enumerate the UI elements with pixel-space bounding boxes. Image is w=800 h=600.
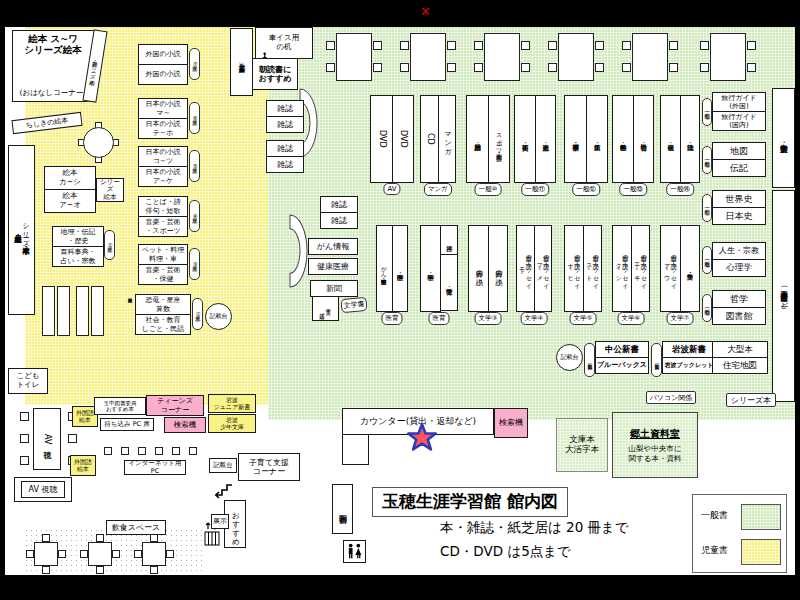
iwanami-booklet-shelf: 岩波ブックレット bbox=[662, 357, 716, 374]
shelf-group-foreign-novels: 外国の小説 外国の小説 文学③ bbox=[468, 225, 508, 312]
biography-shelf: 伝記 bbox=[712, 159, 766, 177]
shelf-column: DVD bbox=[392, 95, 415, 183]
av-viewing-booth-label: AV 視聴 bbox=[21, 481, 65, 498]
reading-table-group bbox=[326, 33, 382, 81]
chair bbox=[447, 41, 456, 50]
reading-table-group bbox=[400, 33, 456, 81]
left-letterbox-bar bbox=[0, 0, 5, 600]
chair bbox=[474, 63, 483, 72]
right-letterbox-bar bbox=[795, 0, 800, 600]
magazine-shelf: 雑誌 bbox=[320, 212, 358, 229]
chair bbox=[326, 41, 335, 50]
loan-limit-note: 本・雑誌・紙芝居は 20 冊まで bbox=[440, 519, 670, 537]
shelf-column: CD bbox=[420, 95, 439, 183]
shelf-column: 医学・医学 bbox=[420, 225, 441, 312]
shelf-group-av: DVD DVD AV bbox=[370, 95, 414, 183]
chair bbox=[548, 63, 557, 72]
picture-book-shelf-ka-shi: 絵本 カ~シ bbox=[44, 166, 96, 190]
shelf-group-jp-novels-ku: 日本の小説・エッセイ ク~シ 日本の小説・エッセイ エ~キ 文学⑥ bbox=[612, 225, 650, 312]
stairs-arrow-icon bbox=[212, 483, 234, 499]
reading-table-group bbox=[622, 33, 678, 81]
shelf-tag: 医育 bbox=[382, 312, 403, 325]
chair bbox=[20, 456, 29, 465]
iwanami-junior-shinsho-shelf: 岩波 ジュニア新書 bbox=[208, 394, 256, 413]
chair bbox=[42, 566, 50, 574]
chair bbox=[400, 41, 409, 50]
chair bbox=[669, 41, 678, 50]
chair bbox=[20, 434, 29, 443]
kids-toilet: こども トイレ bbox=[8, 368, 48, 394]
restroom-icon bbox=[343, 540, 366, 563]
children-1-tag: 児童① bbox=[104, 230, 115, 260]
close-mark-icon: ✕ bbox=[420, 4, 431, 19]
chair bbox=[150, 566, 158, 574]
writing-stand: 記載台 bbox=[205, 303, 232, 330]
shelf-group-medical-2: 医学・医学 洋書 育児・医学 医育 bbox=[420, 225, 458, 312]
shelf-tag: 文学③ bbox=[475, 312, 502, 325]
literature-books-tag: 文学書 bbox=[340, 297, 367, 314]
map-shelf: 地図 bbox=[712, 142, 766, 160]
morning-reading-shelf: 朝読書に おすすめ bbox=[252, 58, 298, 90]
chair bbox=[669, 63, 678, 72]
display-tag: 展示 bbox=[211, 514, 229, 529]
shelf-slat bbox=[42, 286, 55, 336]
chair bbox=[138, 447, 146, 455]
av-limit-note: CD・DVD は5点まで bbox=[440, 543, 670, 561]
shelf-group-crafts: 手芸・料理・家事 技術・工業 一般⑫ bbox=[564, 95, 608, 183]
series-picture-book-tag: シリーズ 絵本 bbox=[96, 178, 124, 202]
kids-society-shelf: 社会・教育 しごと・民話 bbox=[135, 314, 191, 335]
kids-shinsho-shelf: 児童新書 青い鳥文庫・他 bbox=[230, 28, 253, 96]
chair bbox=[700, 41, 709, 50]
psychology-shelf: 心理学 bbox=[712, 259, 766, 277]
kids-japanese-novel-shelf: 日本の小説 マ~ bbox=[138, 98, 188, 119]
cafe-table bbox=[88, 542, 112, 566]
story-room-sublabel: (おはなしコーナー) bbox=[20, 89, 87, 98]
wheelchair-desk-label: 車イス用 の机 bbox=[269, 34, 299, 51]
kids-science-shelf: 恐竜・星座 算数 bbox=[135, 294, 191, 315]
chair bbox=[622, 63, 631, 72]
wheelchair-desk: 車イス用 の机 bbox=[255, 27, 313, 59]
shelf-column: 育児・医学 bbox=[440, 254, 459, 311]
general-shinsho-tag: 一般新書 bbox=[651, 343, 662, 377]
chair bbox=[96, 534, 104, 542]
general-18-tag: 一般⑱ bbox=[702, 246, 712, 274]
shelf-slat bbox=[91, 286, 104, 336]
internet-pc-desk: インターネット用 PC bbox=[124, 460, 186, 475]
shelf-tag: 文学⑥ bbox=[618, 312, 645, 325]
chair bbox=[595, 63, 604, 72]
children-2-tag: 児童② bbox=[192, 298, 203, 330]
shelf-tag: AV bbox=[383, 183, 400, 195]
cafe-table bbox=[142, 542, 166, 566]
magazine-shelf: 雑誌 bbox=[266, 140, 304, 157]
local-history-room-title: 郷土資料室 bbox=[630, 427, 680, 441]
shelf-column: 日本の小説・エッセイ エ~キ bbox=[631, 225, 651, 312]
shelf-tag: 文学④ bbox=[521, 312, 548, 325]
health-care-shelf: 健康医療 bbox=[308, 258, 358, 275]
bluebacks-shelf: ブルーバックス bbox=[595, 357, 649, 374]
counter-leg bbox=[342, 434, 369, 465]
general-shinsho-tag: 一般新書 bbox=[584, 343, 595, 377]
reading-table-group bbox=[700, 33, 756, 81]
shelf-column: 税金・福祉 bbox=[660, 95, 681, 183]
search-terminal: 検索機 bbox=[494, 408, 528, 438]
chuko-shinsho-shelf: 中公新書 bbox=[595, 341, 649, 358]
general-16-tag: 一般⑯ bbox=[702, 146, 712, 174]
legend-children-swatch bbox=[741, 539, 781, 565]
chair bbox=[521, 41, 530, 50]
iwanami-shinsho-shelf: 岩波新書 bbox=[662, 341, 716, 358]
shelf-column: DVD bbox=[370, 95, 393, 183]
shelf-column: マンガ bbox=[438, 95, 457, 183]
children-6-tag: 児童⑥ bbox=[189, 102, 200, 134]
legend-children-label: 児童書 bbox=[701, 544, 728, 557]
shelf-column: 観光・産業 bbox=[535, 95, 557, 183]
round-table-group bbox=[78, 122, 120, 164]
search-terminal: 検索機 bbox=[164, 417, 206, 433]
children-5-tag: 児童⑤ bbox=[189, 150, 200, 182]
chair bbox=[96, 566, 104, 574]
japanese-history-shelf: 日本史 bbox=[712, 207, 766, 225]
encyclopedia-shelf: 百科事典・ 占い・宗教 bbox=[52, 246, 104, 267]
bottom-letterbox-bar bbox=[0, 575, 800, 600]
kids-foreign-novel-shelf: 外国の小説 bbox=[138, 64, 188, 85]
shelf-column: 数学・自然科学 bbox=[612, 95, 634, 183]
legend: 一般書 児童書 bbox=[692, 494, 787, 573]
writing-stand: 記載台 bbox=[209, 458, 237, 473]
shelf-column: がん情報・医療・医学 bbox=[376, 225, 393, 312]
picture-book-shelf-a-o: 絵本 ア~オ bbox=[44, 189, 96, 213]
cancer-info-shelf: がん情報 bbox=[308, 238, 358, 255]
shelf-column: 外国の小説 bbox=[488, 225, 509, 312]
shelf-group-language: 日本語・外国語 スポーツ・音楽・演劇 一般⑩ bbox=[466, 95, 510, 183]
chair bbox=[68, 434, 77, 443]
philosophy-shelf: 哲学 bbox=[712, 290, 766, 308]
reading-table bbox=[484, 33, 520, 81]
parenting-support-shelf: 子育て 応援 bbox=[312, 296, 339, 321]
kamishibai-shelf: シリーズ本・点字絵本・布絵本・ 紙芝居・大型紙芝居・大型絵本 bbox=[8, 145, 35, 315]
chair bbox=[622, 41, 631, 50]
shelf-column: 芸術・美術 bbox=[514, 95, 536, 183]
reading-table bbox=[336, 33, 372, 81]
kids-shinsho-sublabel: 青い鳥文庫・他 bbox=[239, 59, 244, 64]
shelf-column: 技術・工業 bbox=[586, 95, 609, 183]
map-title: 玉穂生涯学習館 館内図 bbox=[372, 487, 568, 517]
housing-map-shelf: 住宅地図 bbox=[712, 357, 768, 374]
chair bbox=[548, 41, 557, 50]
shelf-tag: 文学⑦ bbox=[667, 312, 694, 325]
shelf-group-art: 芸術・美術 観光・産業 一般⑪ bbox=[514, 95, 556, 183]
shelf-column: スポーツ・音楽・演劇 bbox=[488, 95, 511, 183]
local-history-room: 郷土資料室 山梨や中央市に 関する本・資料 bbox=[612, 412, 698, 478]
reading-table-group bbox=[474, 33, 530, 81]
life-religion-shelf: 人生・宗教 bbox=[712, 242, 766, 260]
kids-japanese-novel-shelf: 日本の小説 テ~ホ bbox=[138, 118, 188, 139]
newspaper-rack: 新聞 bbox=[310, 280, 358, 297]
shelf-group-manga: CD マンガ マンガ bbox=[420, 95, 456, 183]
reading-table bbox=[410, 33, 446, 81]
magazine-shelf: 雑誌 bbox=[266, 156, 304, 173]
shelf-column: 文学・俳句・詩 bbox=[680, 225, 701, 312]
magazine-shelf: 雑誌 bbox=[266, 116, 304, 133]
shelf-tag: 一般⑩ bbox=[475, 183, 502, 196]
shelf-slat bbox=[76, 286, 89, 336]
shelf-column: 洋書 bbox=[440, 225, 459, 255]
chair bbox=[104, 447, 112, 455]
world-history-shelf: 世界史 bbox=[712, 190, 766, 208]
chair bbox=[166, 550, 174, 558]
shelf-tag: 医育 bbox=[429, 312, 450, 325]
shelf-column: 日本の小説・エッセイ ス~ト bbox=[583, 225, 603, 312]
general-15-tag: 一般⑮ bbox=[702, 98, 712, 126]
writing-stand: 記載台 bbox=[556, 344, 583, 371]
chair bbox=[700, 63, 709, 72]
av-viewing-table: AV視聴 bbox=[33, 408, 61, 470]
shelf-column: 日本の小説・エッセイ モ~ bbox=[516, 225, 535, 312]
story-corner-room: 絵本 ス~ワ シリーズ絵本 (おはなしコーナー) bbox=[12, 30, 94, 102]
shelf-column: 日本の小説・エッセイ ア~ウ bbox=[660, 225, 681, 312]
round-table bbox=[83, 127, 114, 158]
series-books-tag: シリーズ本 bbox=[726, 393, 776, 407]
chair bbox=[595, 41, 604, 50]
kids-large-book-label: 児童大型本 bbox=[125, 294, 135, 338]
chair bbox=[747, 63, 756, 72]
children-4-tag: 児童④ bbox=[189, 200, 200, 232]
byod-pc-seat: 持ち込み PC 席 bbox=[100, 418, 154, 431]
shelf-column: 日本の小説・エッセイ ク~シ bbox=[612, 225, 632, 312]
you-are-here-star-icon bbox=[406, 423, 438, 451]
chair bbox=[521, 63, 530, 72]
reference-books-strip: 参考図書(図鑑・辞書など) bbox=[772, 190, 795, 402]
shelf-tag: 一般⑪ bbox=[521, 183, 549, 196]
magazine-shelf: 雑誌 bbox=[320, 196, 358, 213]
shelf-tag: 一般⑫ bbox=[572, 183, 600, 196]
story-room-label: シリーズ絵本 bbox=[24, 45, 82, 56]
travel-guide-domestic-shelf: 旅行ガイド (国内) bbox=[712, 111, 766, 131]
shelf-column: 医療・医学 bbox=[392, 225, 409, 312]
kids-music-sports-shelf: 音楽・芸術 ・スポーツ bbox=[138, 216, 188, 237]
shelf-column: 日本の小説・エッセイ ナ~ヒ bbox=[564, 225, 584, 312]
shelf-column: 政治・法律 bbox=[680, 95, 701, 183]
shelf-group-medical-1: がん情報・医療・医学 医療・医学 医育 bbox=[376, 225, 408, 312]
chair bbox=[474, 41, 483, 50]
geography-shelf: 地理・伝記 ・歴史 bbox=[52, 226, 104, 247]
reading-table bbox=[710, 33, 746, 81]
shelf-group-jp-novels-na: 日本の小説・エッセイ ナ~ヒ 日本の小説・エッセイ ス~ト 文学⑤ bbox=[564, 225, 602, 312]
general-17-tag: 一般⑰ bbox=[702, 194, 712, 222]
shelf-column: 日本語・外国語 bbox=[466, 95, 489, 183]
chair bbox=[112, 550, 120, 558]
shelf-slat bbox=[57, 286, 70, 336]
teens-corner: ティーンズ コーナー bbox=[146, 395, 204, 416]
large-books-shelf: 大型本 bbox=[712, 341, 768, 358]
chair bbox=[150, 534, 158, 542]
shelf-column: 外国の小説 bbox=[468, 225, 489, 312]
local-history-room-subtitle: 山梨や中央市に 関する本・資料 bbox=[629, 444, 682, 464]
chair bbox=[326, 63, 335, 72]
pc-related-tag: パソコン関係 bbox=[646, 391, 696, 404]
cafe-table bbox=[34, 542, 58, 566]
chair bbox=[42, 534, 50, 542]
iwanami-shonen-bunko-shelf: 岩波 少年文庫 bbox=[208, 414, 256, 433]
shelf-column-stack: 洋書 育児・医学 bbox=[440, 225, 459, 312]
chair bbox=[373, 63, 382, 72]
shelf-tag: 一般⑭ bbox=[666, 183, 694, 196]
chair bbox=[80, 550, 88, 558]
kids-music-health-shelf: 音楽・芸術 ・保健 bbox=[138, 264, 188, 285]
chair bbox=[189, 447, 197, 455]
chair bbox=[172, 447, 180, 455]
chair bbox=[134, 550, 142, 558]
literature-collection-strip: 文学全集・叢書 bbox=[772, 88, 795, 188]
reading-table-group bbox=[548, 33, 604, 81]
paperback-large-print-area: 文庫本 大活字本 bbox=[556, 418, 608, 472]
school-committee-picks-shelf: 玉中図書委員 おすすめ本 bbox=[94, 397, 146, 415]
shelf-group-jp-novels-a: 日本の小説・エッセイ ア~ウ 文学・俳句・詩 文学⑦ bbox=[660, 225, 700, 312]
children-3-tag: 児童③ bbox=[189, 248, 200, 280]
chair bbox=[447, 63, 456, 72]
parenting-support-corner: 子育て支援 コーナー bbox=[238, 453, 300, 481]
chair bbox=[400, 63, 409, 72]
shelf-tag: 文学⑤ bbox=[570, 312, 597, 325]
reading-table bbox=[632, 33, 668, 81]
kids-poetry-shelf: ことば・詩 俳句・短歌 bbox=[138, 196, 188, 217]
shelf-column: 民俗・教育 bbox=[633, 95, 655, 183]
kids-foreign-novel-shelf: 外国の小説 bbox=[138, 44, 188, 65]
new-arrivals-shelf: 新刊図書 bbox=[332, 484, 353, 534]
chair bbox=[20, 412, 29, 421]
library-science-shelf: 図書館 bbox=[712, 307, 766, 325]
shelf-tag: 一般⑬ bbox=[619, 183, 647, 196]
chair bbox=[121, 447, 129, 455]
chair bbox=[26, 550, 34, 558]
shelf-tag: マンガ bbox=[424, 183, 452, 196]
travel-guide-foreign-shelf: 旅行ガイド (外国) bbox=[712, 92, 766, 112]
legend-general-label: 一般書 bbox=[701, 509, 728, 522]
shelf-group-politics: 税金・福祉 政治・法律 一般⑭ bbox=[660, 95, 700, 183]
chair bbox=[373, 41, 382, 50]
legend-general-swatch bbox=[741, 504, 781, 530]
kids-japanese-novel-shelf: 日本の小説 コ~ツ bbox=[138, 146, 188, 167]
magazine-shelf: 雑誌 bbox=[266, 100, 304, 117]
wheelchair-icon bbox=[260, 43, 272, 55]
library-floor-map: 絵本 ス~ワ シリーズ絵本 (おはなしコーナー) 昔話・シリーズ絵本 ちしきの絵… bbox=[0, 0, 800, 600]
general-19-tag: 一般⑲ bbox=[702, 294, 712, 322]
reading-table bbox=[558, 33, 594, 81]
eating-space-label: 飲食スペース bbox=[106, 520, 166, 535]
chair bbox=[58, 550, 66, 558]
chair bbox=[747, 41, 756, 50]
kids-japanese-novel-shelf: 日本の小説 ア~ケ bbox=[138, 166, 188, 187]
children-7-tag: 児童⑦ bbox=[189, 48, 200, 80]
shelf-group-science: 数学・自然科学 民俗・教育 一般⑬ bbox=[612, 95, 654, 183]
shelf-column: 日本の小説・エッセイ フ~メ bbox=[534, 225, 553, 312]
shelf-column: 手芸・料理・家事 bbox=[564, 95, 587, 183]
kids-pets-cooking-shelf: ペット・料理 料理・車 bbox=[138, 244, 188, 265]
chair bbox=[155, 447, 163, 455]
top-letterbox-bar: ✕ bbox=[0, 0, 800, 27]
shelf-group-jp-novels-mo: 日本の小説・エッセイ モ~ 日本の小説・エッセイ フ~メ 文学④ bbox=[516, 225, 552, 312]
foreign-language-picture-books: 外国語 絵本 bbox=[70, 455, 96, 476]
